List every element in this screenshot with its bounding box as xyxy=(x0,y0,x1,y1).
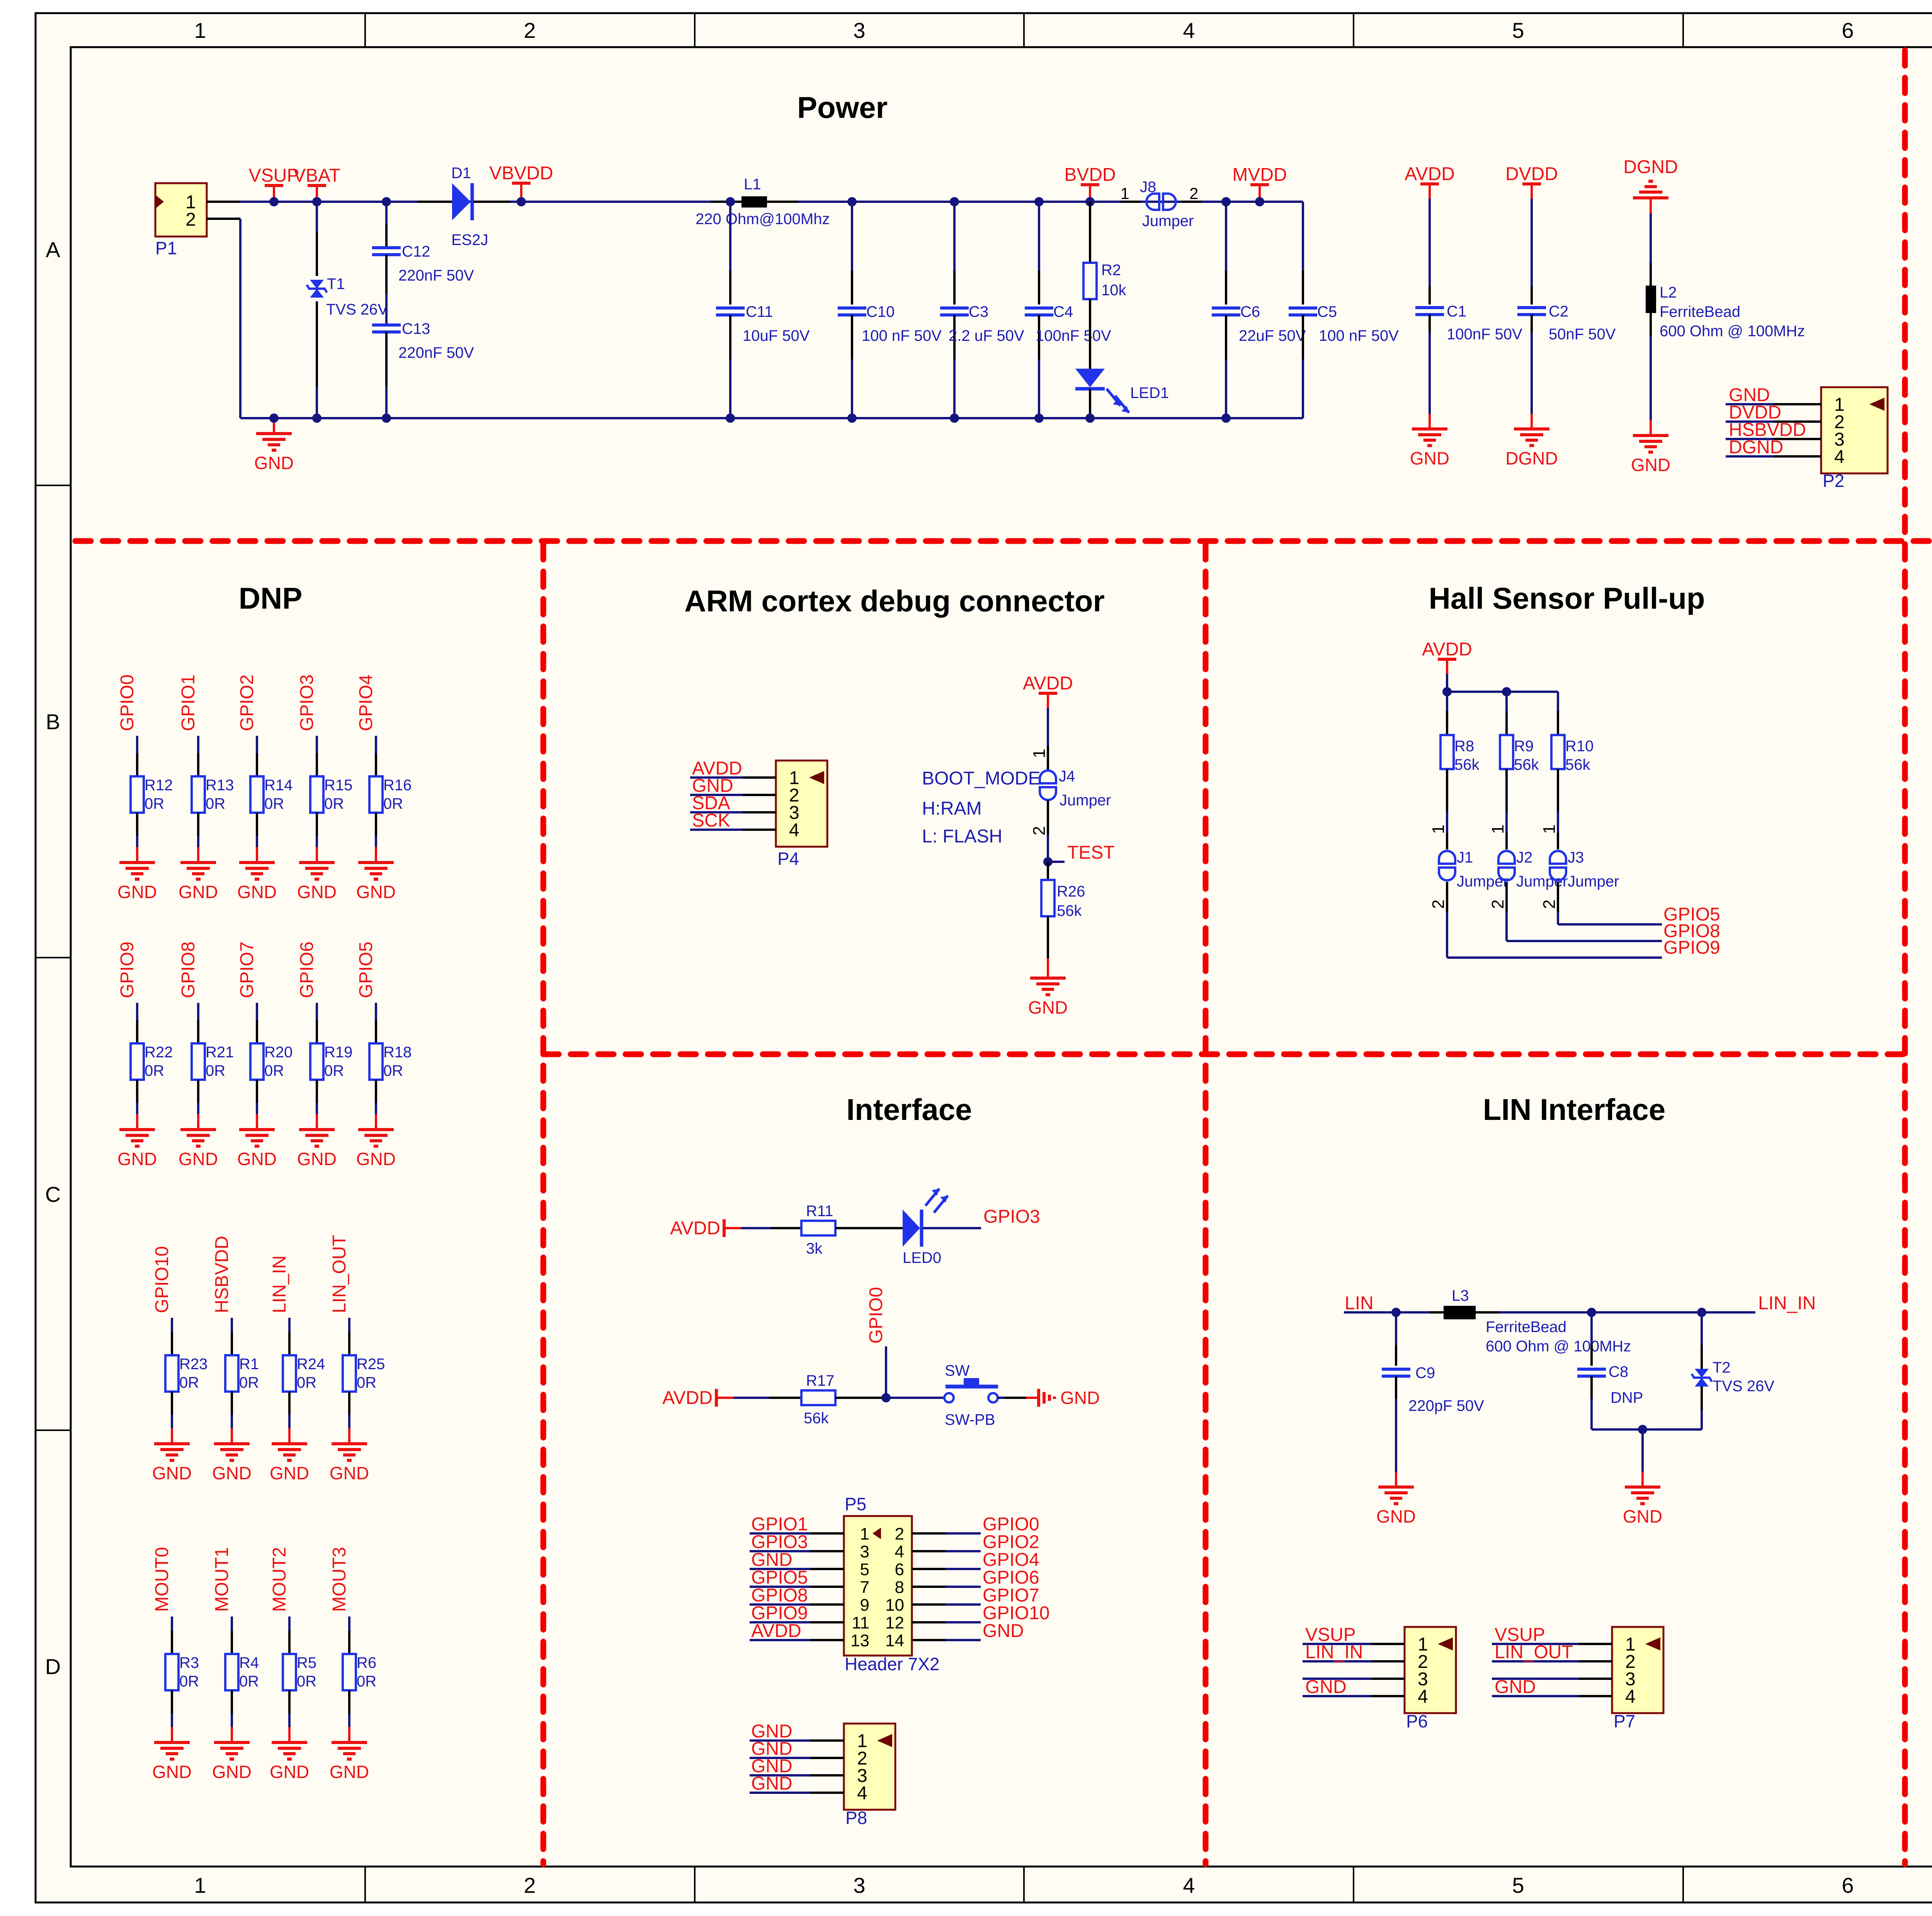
svg-text:HSBVDD: HSBVDD xyxy=(212,1236,232,1313)
svg-text:C5: C5 xyxy=(1317,303,1337,320)
svg-text:4: 4 xyxy=(895,1542,904,1561)
svg-text:SCK: SCK xyxy=(692,810,730,831)
svg-text:T1: T1 xyxy=(327,276,345,293)
svg-text:LIN_IN: LIN_IN xyxy=(1305,1642,1363,1662)
svg-text:GND: GND xyxy=(1623,1506,1662,1526)
svg-text:GND: GND xyxy=(983,1621,1024,1641)
svg-text:GND: GND xyxy=(330,1463,369,1483)
svg-text:C: C xyxy=(45,1182,61,1206)
svg-text:BOOT_MODE: BOOT_MODE xyxy=(922,768,1041,789)
svg-text:J2: J2 xyxy=(1516,849,1532,866)
svg-text:GND: GND xyxy=(270,1463,309,1483)
svg-text:GND: GND xyxy=(297,882,337,902)
svg-text:GND: GND xyxy=(179,882,218,902)
svg-text:4: 4 xyxy=(789,820,799,841)
svg-text:220nF 50V: 220nF 50V xyxy=(398,344,474,361)
svg-text:0R: 0R xyxy=(145,795,164,812)
svg-text:1: 1 xyxy=(1488,825,1507,834)
svg-text:AVDD: AVDD xyxy=(1405,164,1455,184)
svg-text:4: 4 xyxy=(1625,1686,1636,1707)
svg-text:0R: 0R xyxy=(239,1374,259,1391)
svg-text:0R: 0R xyxy=(206,1062,225,1079)
svg-text:1: 1 xyxy=(1121,184,1129,202)
svg-text:J3: J3 xyxy=(1568,849,1584,866)
svg-text:6: 6 xyxy=(1842,1873,1854,1897)
svg-text:13: 13 xyxy=(850,1631,869,1650)
svg-text:GND: GND xyxy=(330,1762,369,1782)
svg-text:P4: P4 xyxy=(777,849,799,869)
svg-text:56k: 56k xyxy=(1565,756,1590,773)
svg-text:GND: GND xyxy=(1410,448,1449,468)
svg-text:D1: D1 xyxy=(451,165,471,182)
svg-text:GPIO7: GPIO7 xyxy=(237,941,257,998)
svg-text:GPIO2: GPIO2 xyxy=(237,674,257,731)
svg-text:GPIO4: GPIO4 xyxy=(356,674,376,731)
svg-text:H:RAM: H:RAM xyxy=(922,798,982,819)
svg-text:MOUT1: MOUT1 xyxy=(212,1547,232,1612)
svg-text:R16: R16 xyxy=(383,777,412,794)
svg-text:GND: GND xyxy=(751,1773,793,1794)
svg-text:GPIO1: GPIO1 xyxy=(178,674,199,731)
svg-text:GND: GND xyxy=(117,882,157,902)
svg-text:3: 3 xyxy=(860,1542,869,1561)
svg-text:BVDD: BVDD xyxy=(1064,165,1116,185)
svg-text:P5: P5 xyxy=(845,1494,866,1514)
svg-text:GND: GND xyxy=(356,882,396,902)
svg-text:100nF 50V: 100nF 50V xyxy=(1036,327,1111,344)
svg-text:1: 1 xyxy=(1030,749,1049,758)
svg-text:GND: GND xyxy=(117,1149,157,1169)
svg-text:DGND: DGND xyxy=(1729,437,1783,458)
svg-text:0R: 0R xyxy=(179,1673,199,1690)
svg-text:P2: P2 xyxy=(1823,471,1844,491)
svg-text:AVDD: AVDD xyxy=(670,1218,720,1239)
svg-text:12: 12 xyxy=(885,1613,904,1632)
svg-text:2: 2 xyxy=(185,209,196,230)
svg-text:AVDD: AVDD xyxy=(662,1388,713,1408)
svg-text:LIN_IN: LIN_IN xyxy=(1758,1293,1816,1314)
svg-text:T2: T2 xyxy=(1713,1359,1731,1376)
svg-text:GND: GND xyxy=(237,1149,277,1169)
svg-text:VBAT: VBAT xyxy=(293,165,340,186)
svg-text:LIN_OUT: LIN_OUT xyxy=(329,1235,350,1313)
svg-text:C8: C8 xyxy=(1609,1363,1628,1380)
svg-text:DGND: DGND xyxy=(1505,448,1558,468)
svg-text:0R: 0R xyxy=(297,1374,316,1391)
svg-text:GPIO10: GPIO10 xyxy=(152,1246,172,1313)
svg-text:5: 5 xyxy=(860,1560,869,1579)
svg-text:1: 1 xyxy=(860,1525,869,1543)
svg-text:GND: GND xyxy=(1060,1388,1100,1408)
svg-text:C2: C2 xyxy=(1549,303,1568,320)
svg-text:GPIO6: GPIO6 xyxy=(297,941,317,998)
svg-text:R26: R26 xyxy=(1057,883,1085,900)
svg-text:TVS 26V: TVS 26V xyxy=(1713,1378,1774,1395)
svg-text:MOUT2: MOUT2 xyxy=(269,1547,290,1612)
svg-text:GPIO0: GPIO0 xyxy=(117,674,138,731)
svg-text:2.2 uF 50V: 2.2 uF 50V xyxy=(949,327,1024,344)
svg-text:FerriteBead: FerriteBead xyxy=(1486,1319,1566,1336)
svg-text:DVDD: DVDD xyxy=(1505,164,1558,184)
svg-text:14: 14 xyxy=(885,1631,904,1650)
svg-text:GPIO9: GPIO9 xyxy=(117,941,138,998)
svg-text:DNP: DNP xyxy=(1611,1389,1643,1406)
svg-text:C6: C6 xyxy=(1240,303,1260,320)
svg-text:4: 4 xyxy=(1418,1686,1428,1707)
svg-text:Hall Sensor Pull-up: Hall Sensor Pull-up xyxy=(1429,581,1705,615)
svg-text:100nF 50V: 100nF 50V xyxy=(1447,326,1522,343)
svg-text:2: 2 xyxy=(1429,900,1448,909)
svg-text:5: 5 xyxy=(1512,18,1524,43)
svg-text:P6: P6 xyxy=(1406,1711,1428,1731)
svg-text:2: 2 xyxy=(1488,900,1507,909)
svg-text:R17: R17 xyxy=(806,1372,834,1389)
svg-text:R3: R3 xyxy=(179,1654,199,1671)
svg-text:Power: Power xyxy=(797,90,888,124)
svg-text:GND: GND xyxy=(270,1762,309,1782)
svg-text:0R: 0R xyxy=(264,1062,284,1079)
svg-text:0R: 0R xyxy=(264,795,284,812)
svg-text:GND: GND xyxy=(1631,455,1670,475)
svg-text:GND: GND xyxy=(254,453,294,473)
svg-text:LIN Interface: LIN Interface xyxy=(1483,1092,1665,1126)
svg-text:600 Ohm @ 100MHz: 600 Ohm @ 100MHz xyxy=(1660,323,1805,340)
svg-text:GPIO8: GPIO8 xyxy=(178,941,199,998)
svg-text:1: 1 xyxy=(194,18,206,43)
svg-text:LED0: LED0 xyxy=(903,1249,941,1266)
svg-text:R15: R15 xyxy=(324,777,352,794)
svg-text:DGND: DGND xyxy=(1623,157,1678,177)
svg-text:1: 1 xyxy=(194,1873,206,1897)
svg-text:GPIO3: GPIO3 xyxy=(983,1206,1040,1227)
svg-text:VSUP: VSUP xyxy=(249,165,299,186)
svg-text:100 nF 50V: 100 nF 50V xyxy=(862,327,942,344)
svg-text:R8: R8 xyxy=(1454,738,1474,755)
svg-text:6: 6 xyxy=(895,1560,904,1579)
svg-text:2: 2 xyxy=(895,1525,904,1543)
svg-text:0R: 0R xyxy=(357,1673,376,1690)
svg-text:220pF 50V: 220pF 50V xyxy=(1408,1397,1484,1414)
svg-text:L3: L3 xyxy=(1452,1287,1469,1304)
svg-text:0R: 0R xyxy=(297,1673,316,1690)
svg-text:0R: 0R xyxy=(239,1673,259,1690)
svg-text:R2: R2 xyxy=(1101,262,1121,279)
svg-text:4: 4 xyxy=(857,1783,867,1804)
svg-text:11: 11 xyxy=(852,1613,869,1632)
svg-text:R24: R24 xyxy=(297,1356,325,1373)
svg-text:R20: R20 xyxy=(264,1044,293,1061)
svg-text:4: 4 xyxy=(1834,447,1845,467)
svg-text:DNP: DNP xyxy=(239,581,303,615)
svg-text:GPIO3: GPIO3 xyxy=(297,674,317,731)
svg-text:R11: R11 xyxy=(806,1203,833,1220)
svg-text:ARM cortex debug connector: ARM cortex debug connector xyxy=(684,584,1105,618)
svg-text:2: 2 xyxy=(524,1873,536,1897)
svg-text:AVDD: AVDD xyxy=(751,1621,801,1641)
svg-text:ES2J: ES2J xyxy=(451,231,488,248)
svg-text:22uF 50V: 22uF 50V xyxy=(1239,327,1306,344)
svg-text:TEST: TEST xyxy=(1067,842,1115,863)
svg-text:GND: GND xyxy=(212,1463,252,1483)
svg-text:8: 8 xyxy=(895,1578,904,1597)
svg-text:C4: C4 xyxy=(1053,303,1073,320)
svg-text:R6: R6 xyxy=(357,1654,376,1671)
svg-text:2: 2 xyxy=(1189,184,1198,202)
svg-text:L: FLASH: L: FLASH xyxy=(922,826,1002,847)
svg-text:56k: 56k xyxy=(1057,902,1082,919)
svg-text:0R: 0R xyxy=(383,1062,403,1079)
svg-text:0R: 0R xyxy=(324,1062,344,1079)
svg-text:R5: R5 xyxy=(297,1654,316,1671)
svg-text:B: B xyxy=(46,710,60,734)
svg-text:0R: 0R xyxy=(145,1062,164,1079)
svg-text:9: 9 xyxy=(860,1596,869,1615)
svg-text:C10: C10 xyxy=(866,303,895,320)
svg-text:C12: C12 xyxy=(402,243,430,260)
svg-text:Jumper: Jumper xyxy=(1457,873,1508,890)
svg-text:R22: R22 xyxy=(145,1044,173,1061)
svg-text:0R: 0R xyxy=(324,795,344,812)
svg-text:R4: R4 xyxy=(239,1654,259,1671)
svg-text:GPIO0: GPIO0 xyxy=(866,1287,886,1344)
svg-text:SW-PB: SW-PB xyxy=(945,1411,995,1428)
svg-text:LIN_OUT: LIN_OUT xyxy=(1495,1642,1573,1662)
svg-text:GND: GND xyxy=(1028,997,1068,1018)
svg-text:GND: GND xyxy=(297,1149,337,1169)
svg-text:R19: R19 xyxy=(324,1044,352,1061)
svg-text:0R: 0R xyxy=(357,1374,376,1391)
svg-text:Jumper: Jumper xyxy=(1060,792,1111,809)
svg-text:10uF 50V: 10uF 50V xyxy=(743,327,810,344)
svg-text:P8: P8 xyxy=(845,1808,867,1828)
svg-text:AVDD: AVDD xyxy=(1023,673,1073,694)
svg-text:FerriteBead: FerriteBead xyxy=(1660,303,1740,320)
svg-text:GND: GND xyxy=(1495,1677,1536,1697)
svg-text:220nF 50V: 220nF 50V xyxy=(398,267,474,284)
svg-text:50nF 50V: 50nF 50V xyxy=(1549,326,1616,343)
svg-text:4: 4 xyxy=(1183,18,1195,43)
svg-text:3: 3 xyxy=(853,1873,865,1897)
svg-text:C13: C13 xyxy=(402,320,430,337)
svg-text:MOUT0: MOUT0 xyxy=(152,1547,172,1612)
svg-text:D: D xyxy=(45,1654,61,1679)
svg-text:3k: 3k xyxy=(806,1240,823,1257)
svg-text:R18: R18 xyxy=(383,1044,412,1061)
svg-text:J4: J4 xyxy=(1059,768,1075,785)
svg-text:R12: R12 xyxy=(145,777,173,794)
svg-text:0R: 0R xyxy=(383,795,403,812)
svg-text:10k: 10k xyxy=(1101,282,1126,299)
svg-text:GND: GND xyxy=(152,1463,192,1483)
svg-text:56k: 56k xyxy=(1454,756,1480,773)
svg-text:SW: SW xyxy=(945,1362,970,1379)
svg-text:P1: P1 xyxy=(155,238,177,258)
svg-text:Interface: Interface xyxy=(846,1092,972,1126)
svg-text:LED1: LED1 xyxy=(1130,385,1169,402)
svg-text:56k: 56k xyxy=(804,1410,829,1427)
svg-text:Jumper: Jumper xyxy=(1568,873,1619,890)
svg-text:2: 2 xyxy=(524,18,536,43)
svg-text:VBVDD: VBVDD xyxy=(489,163,553,184)
svg-text:3: 3 xyxy=(853,18,865,43)
svg-text:L2: L2 xyxy=(1660,284,1677,301)
svg-text:2: 2 xyxy=(1540,900,1559,909)
svg-text:56k: 56k xyxy=(1514,756,1539,773)
svg-text:P7: P7 xyxy=(1614,1711,1635,1731)
svg-text:R14: R14 xyxy=(264,777,293,794)
svg-text:220 Ohm@100Mhz: 220 Ohm@100Mhz xyxy=(696,211,830,228)
svg-text:TVS 26V: TVS 26V xyxy=(326,301,388,318)
svg-text:R25: R25 xyxy=(357,1356,385,1373)
svg-text:A: A xyxy=(46,237,60,262)
svg-text:GND: GND xyxy=(356,1149,396,1169)
svg-text:GND: GND xyxy=(212,1762,252,1782)
svg-text:1: 1 xyxy=(1540,825,1559,834)
svg-text:MVDD: MVDD xyxy=(1232,165,1287,185)
svg-text:R10: R10 xyxy=(1565,738,1594,755)
svg-text:GND: GND xyxy=(1376,1506,1416,1526)
svg-text:0R: 0R xyxy=(206,795,225,812)
svg-text:J8: J8 xyxy=(1140,179,1156,196)
svg-text:10: 10 xyxy=(885,1596,904,1615)
svg-text:0R: 0R xyxy=(179,1374,199,1391)
svg-text:1: 1 xyxy=(1429,825,1448,834)
svg-text:100 nF 50V: 100 nF 50V xyxy=(1319,327,1399,344)
svg-text:6: 6 xyxy=(1842,18,1854,43)
svg-text:5: 5 xyxy=(1512,1873,1524,1897)
svg-text:Jumper: Jumper xyxy=(1516,873,1568,890)
svg-text:GPIO9: GPIO9 xyxy=(1663,938,1720,958)
svg-text:R13: R13 xyxy=(206,777,234,794)
svg-text:J1: J1 xyxy=(1457,849,1473,866)
svg-text:C11: C11 xyxy=(746,303,773,320)
svg-text:R21: R21 xyxy=(206,1044,234,1061)
svg-text:AVDD: AVDD xyxy=(1422,639,1472,660)
svg-text:MOUT3: MOUT3 xyxy=(329,1547,350,1612)
svg-text:GPIO5: GPIO5 xyxy=(356,941,376,998)
svg-text:LIN_IN: LIN_IN xyxy=(269,1256,290,1313)
svg-text:C9: C9 xyxy=(1415,1365,1435,1382)
svg-text:GND: GND xyxy=(152,1762,192,1782)
svg-text:GND: GND xyxy=(179,1149,218,1169)
svg-text:2: 2 xyxy=(1030,826,1049,835)
svg-text:C1: C1 xyxy=(1447,303,1466,320)
svg-text:L1: L1 xyxy=(744,176,761,193)
svg-text:C3: C3 xyxy=(969,303,988,320)
svg-text:R9: R9 xyxy=(1514,738,1534,755)
svg-text:600 Ohm @ 100MHz: 600 Ohm @ 100MHz xyxy=(1486,1338,1631,1355)
svg-text:GND: GND xyxy=(237,882,277,902)
svg-text:R23: R23 xyxy=(179,1356,207,1373)
svg-text:LIN: LIN xyxy=(1345,1293,1374,1314)
svg-text:Header 7X2: Header 7X2 xyxy=(845,1654,940,1674)
svg-text:R1: R1 xyxy=(239,1356,259,1373)
svg-text:4: 4 xyxy=(1183,1873,1195,1897)
svg-text:7: 7 xyxy=(860,1578,869,1597)
svg-text:GND: GND xyxy=(1305,1677,1347,1697)
svg-text:Jumper: Jumper xyxy=(1142,213,1194,230)
